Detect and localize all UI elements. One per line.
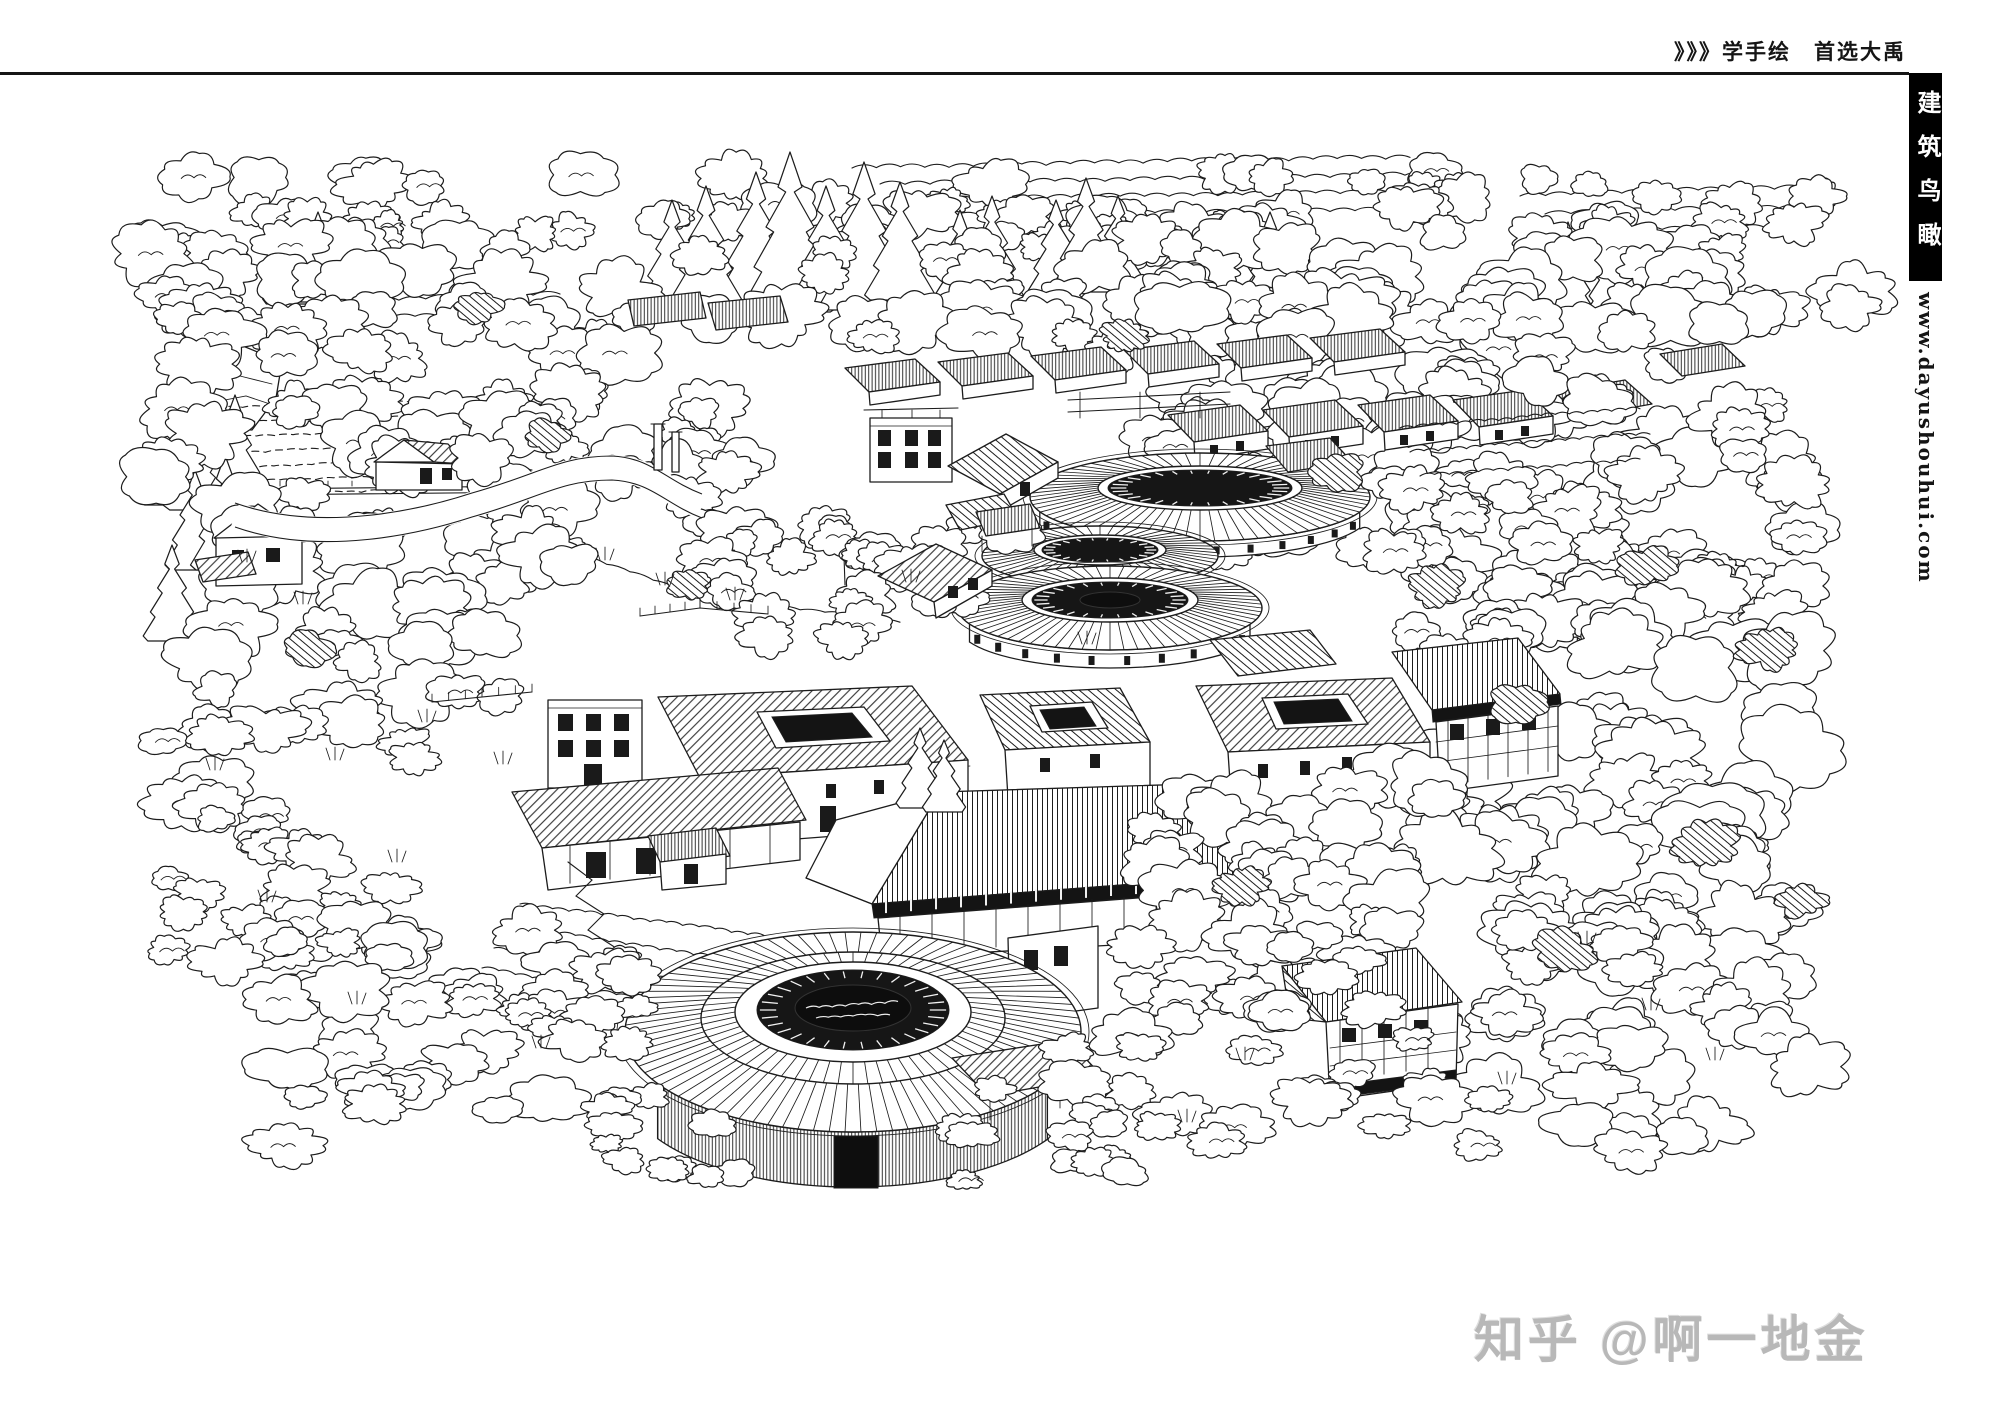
- tulou-3-inner-floor: [1080, 592, 1140, 608]
- column-title-tab: 建筑鸟瞰: [1909, 73, 1942, 281]
- zhihu-watermark: 知乎 @啊一地金: [1474, 1300, 1869, 1372]
- header-promo-text: 》》》学手绘 首选大禹: [1674, 36, 1906, 66]
- website-url-text: www.dayushouhui.com: [1906, 292, 1946, 682]
- header-rule: [0, 72, 1909, 75]
- three-story-tower: [864, 408, 958, 482]
- book-page: 》》》学手绘 首选大禹 建筑鸟瞰 www.dayushouhui.com 知乎 …: [0, 0, 2000, 1413]
- tulou-village-ink-sketch: [0, 0, 2000, 1413]
